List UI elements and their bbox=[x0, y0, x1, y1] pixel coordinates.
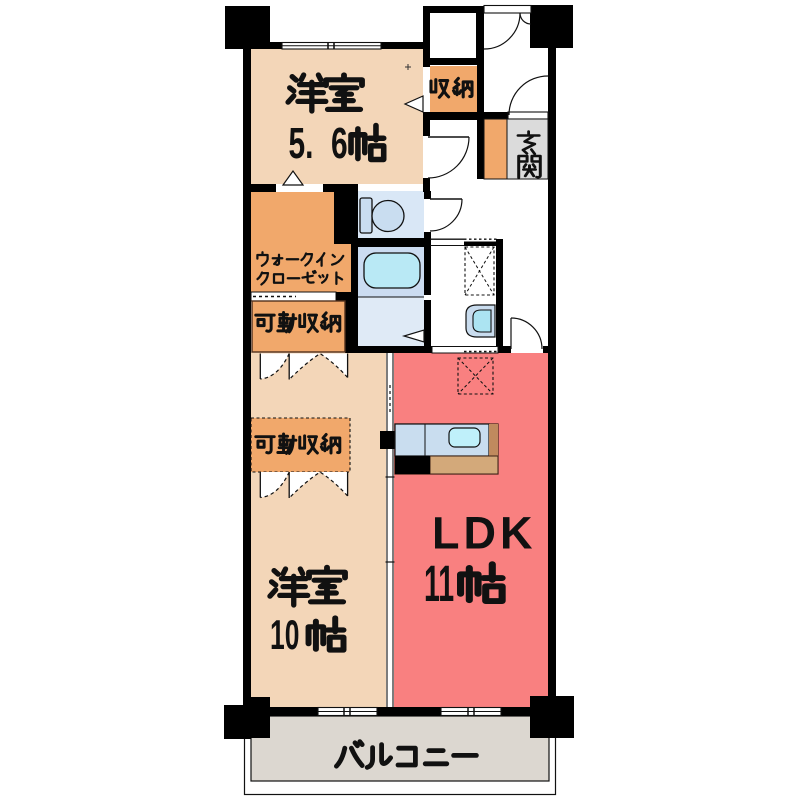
svg-text:10: 10 bbox=[270, 612, 299, 659]
svg-text:6: 6 bbox=[331, 118, 348, 167]
svg-text:5.: 5. bbox=[289, 118, 314, 167]
svg-text:LDK: LDK bbox=[432, 508, 536, 559]
svg-text:11: 11 bbox=[424, 555, 454, 612]
